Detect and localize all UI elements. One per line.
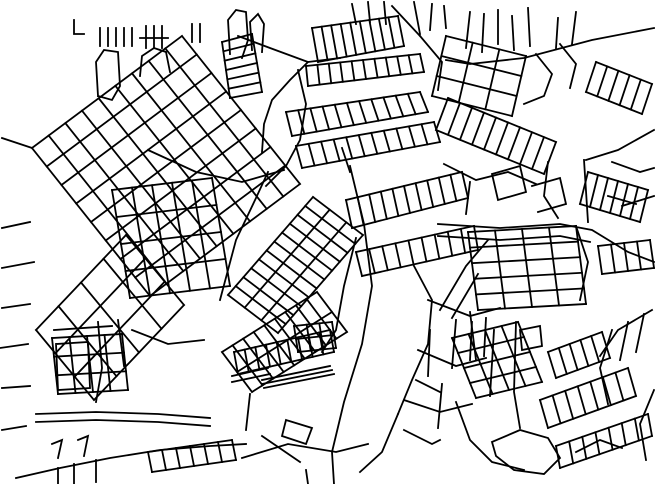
road-line: [140, 48, 170, 76]
road-line: [335, 105, 342, 128]
road-line: [340, 62, 343, 81]
road-line: [306, 66, 308, 86]
road-line: [368, 2, 370, 22]
road-line: [379, 19, 385, 50]
road-line: [595, 432, 599, 454]
road-line: [485, 49, 499, 109]
road-line: [597, 66, 607, 96]
road-line: [512, 56, 526, 116]
road-line: [382, 246, 388, 270]
road-line: [2, 386, 30, 388]
road-line: [334, 139, 340, 160]
street-map-canvas: [0, 0, 655, 484]
road-line: [32, 36, 182, 148]
road-line: [408, 240, 413, 264]
road-line: [227, 73, 258, 80]
road-line: [570, 344, 578, 370]
road-line: [448, 103, 460, 135]
road-line: [420, 36, 442, 90]
road-line: [226, 63, 257, 70]
road-line: [512, 16, 514, 50]
road-line: [436, 98, 448, 130]
road-line: [360, 21, 366, 53]
road-line: [602, 332, 610, 358]
road-line: [312, 28, 318, 62]
road-line: [106, 129, 256, 241]
road-line: [347, 103, 354, 125]
road-line: [565, 391, 573, 419]
road-line: [470, 322, 472, 360]
road-line: [148, 150, 284, 182]
road-line: [420, 92, 428, 112]
road-line: [559, 348, 567, 374]
road-line: [427, 180, 433, 207]
road-line: [121, 232, 221, 244]
road-line: [459, 43, 473, 103]
road-line: [310, 108, 316, 131]
road-line: [580, 340, 588, 366]
road-line: [282, 420, 312, 444]
road-line: [362, 250, 478, 276]
road-line: [420, 54, 424, 72]
road-line: [648, 414, 652, 436]
road-line: [267, 250, 317, 288]
road-line: [371, 133, 377, 154]
road-line: [572, 12, 576, 44]
road-line: [228, 295, 278, 333]
road-line: [608, 71, 618, 101]
road-line: [352, 61, 355, 80]
road-line: [259, 259, 309, 297]
road-line: [470, 367, 536, 383]
road-line: [359, 101, 366, 123]
road-line: [600, 178, 608, 210]
road-line: [438, 236, 590, 242]
road-line: [620, 75, 630, 105]
road-line: [476, 382, 542, 398]
road-line: [91, 110, 241, 222]
road-line: [416, 183, 422, 210]
road-line: [70, 337, 76, 393]
road-line: [456, 402, 524, 470]
road-line: [448, 232, 452, 256]
road-line: [220, 172, 268, 300]
road-line: [392, 189, 398, 216]
road-line: [332, 166, 372, 484]
road-line: [298, 337, 302, 359]
road-line: [416, 380, 440, 392]
road-line: [352, 4, 356, 24]
road-line: [448, 98, 556, 142]
road-line: [540, 400, 548, 428]
road-line: [508, 127, 520, 159]
road-line: [461, 229, 465, 253]
road-line: [590, 382, 598, 410]
road-line: [369, 20, 375, 51]
road-line: [640, 190, 648, 222]
road-line: [421, 124, 427, 144]
road-line: [586, 62, 596, 92]
road-line: [464, 352, 530, 368]
road-line: [386, 58, 389, 77]
road-line: [76, 92, 226, 204]
road-line: [322, 27, 328, 61]
road-line: [363, 60, 366, 79]
road-line: [458, 337, 524, 353]
road-line: [569, 441, 573, 463]
road-line: [490, 330, 494, 396]
road-line: [2, 222, 30, 228]
street-map-svg: [0, 0, 655, 484]
road-line: [223, 44, 253, 52]
road-line: [2, 304, 30, 308]
road-line: [162, 450, 166, 470]
road-line: [266, 70, 306, 186]
road-line: [628, 368, 636, 396]
road-line: [369, 194, 375, 222]
road-line: [560, 44, 576, 88]
road-line: [309, 144, 315, 166]
road-line: [245, 350, 249, 372]
road-line: [388, 17, 394, 47]
road-line: [422, 238, 427, 262]
road-line: [548, 352, 556, 378]
road-line: [437, 76, 517, 96]
road-line: [298, 215, 348, 253]
road-line: [398, 266, 432, 414]
road-line: [414, 2, 420, 34]
road-line: [591, 336, 599, 362]
road-line: [432, 96, 512, 116]
road-line: [556, 18, 558, 48]
road-line: [642, 84, 652, 114]
road-line: [16, 444, 246, 478]
road-line: [492, 166, 526, 200]
road-line: [36, 420, 210, 426]
road-line: [586, 130, 654, 160]
road-line: [323, 107, 330, 130]
road-line: [446, 28, 654, 64]
road-line: [635, 419, 639, 441]
road-line: [381, 192, 387, 219]
road-line: [439, 178, 445, 204]
road-line: [615, 373, 623, 401]
road-line: [236, 286, 286, 324]
road-line: [409, 126, 415, 146]
road-line: [246, 394, 250, 430]
road-line: [590, 175, 598, 207]
road-line: [444, 6, 446, 28]
road-line: [584, 160, 588, 222]
road-line: [484, 318, 486, 356]
road-line: [242, 444, 368, 458]
road-line: [612, 162, 654, 172]
road-line: [306, 470, 308, 484]
road-line: [47, 55, 197, 167]
road-line: [359, 135, 365, 156]
road-line: [395, 243, 400, 267]
road-line: [130, 286, 230, 298]
road-line: [450, 175, 456, 201]
road-line: [0, 344, 28, 348]
road-line: [36, 412, 210, 418]
road-line: [598, 246, 602, 274]
road-line: [296, 146, 302, 168]
road-line: [346, 137, 352, 158]
road-line: [520, 132, 532, 164]
road-line: [251, 268, 301, 306]
road-line: [36, 235, 126, 330]
road-line: [266, 345, 270, 367]
road-line: [496, 122, 508, 154]
road-line: [553, 395, 561, 423]
road-line: [522, 229, 532, 307]
road-line: [430, 4, 432, 30]
road-line: [176, 448, 180, 468]
road-line: [229, 82, 261, 88]
road-line: [532, 137, 544, 169]
road-line: [383, 97, 390, 118]
road-line: [384, 2, 386, 24]
road-line: [404, 400, 472, 412]
road-line: [408, 94, 416, 114]
road-line: [452, 320, 456, 368]
road-line: [290, 224, 340, 262]
road-line: [52, 440, 62, 458]
road-line: [329, 64, 331, 84]
road-line: [78, 436, 88, 456]
road-line: [404, 186, 410, 213]
road-line: [578, 386, 586, 414]
road-line: [321, 142, 327, 164]
road-line: [96, 322, 102, 402]
road-line: [331, 25, 337, 58]
road-line: [228, 10, 248, 58]
road-line: [396, 129, 402, 150]
road-line: [492, 430, 560, 474]
road-line: [341, 24, 347, 57]
road-line: [549, 228, 559, 306]
road-line: [94, 305, 184, 400]
road-line: [532, 178, 566, 212]
road-line: [495, 231, 505, 309]
road-line: [404, 430, 440, 444]
road-line: [484, 118, 496, 150]
road-line: [148, 452, 152, 472]
road-line: [435, 235, 440, 259]
road-line: [356, 226, 474, 252]
road-line: [230, 92, 262, 98]
road-line: [524, 54, 552, 104]
road-line: [409, 55, 413, 73]
road-line: [622, 423, 626, 445]
road-line: [96, 50, 120, 100]
road-line: [2, 262, 34, 268]
road-line: [611, 245, 615, 273]
road-line: [286, 112, 292, 136]
road-line: [544, 142, 556, 174]
road-line: [317, 65, 319, 85]
road-line: [350, 23, 356, 55]
road-line: [397, 56, 401, 74]
road-line: [132, 330, 204, 344]
road-line: [631, 80, 641, 110]
road-line: [74, 20, 84, 34]
road-line: [232, 440, 236, 460]
road-line: [356, 252, 362, 276]
road-line: [650, 240, 654, 268]
road-line: [460, 108, 472, 140]
road-line: [54, 326, 112, 330]
road-line: [243, 277, 293, 315]
road-line: [360, 414, 398, 472]
road-line: [313, 197, 363, 235]
road-line: [374, 59, 377, 78]
road-line: [472, 113, 484, 145]
road-line: [624, 243, 628, 271]
road-line: [398, 16, 404, 46]
road-line: [282, 233, 332, 271]
road-line: [384, 131, 390, 152]
road-line: [190, 446, 194, 466]
road-line: [609, 428, 613, 450]
road-line: [250, 14, 264, 52]
road-line: [640, 390, 654, 460]
road-line: [2, 138, 32, 148]
road-line: [2, 426, 26, 430]
road-line: [371, 99, 378, 120]
road-line: [528, 8, 530, 46]
road-line: [428, 300, 500, 316]
road-line: [396, 96, 404, 117]
road-line: [274, 242, 324, 280]
